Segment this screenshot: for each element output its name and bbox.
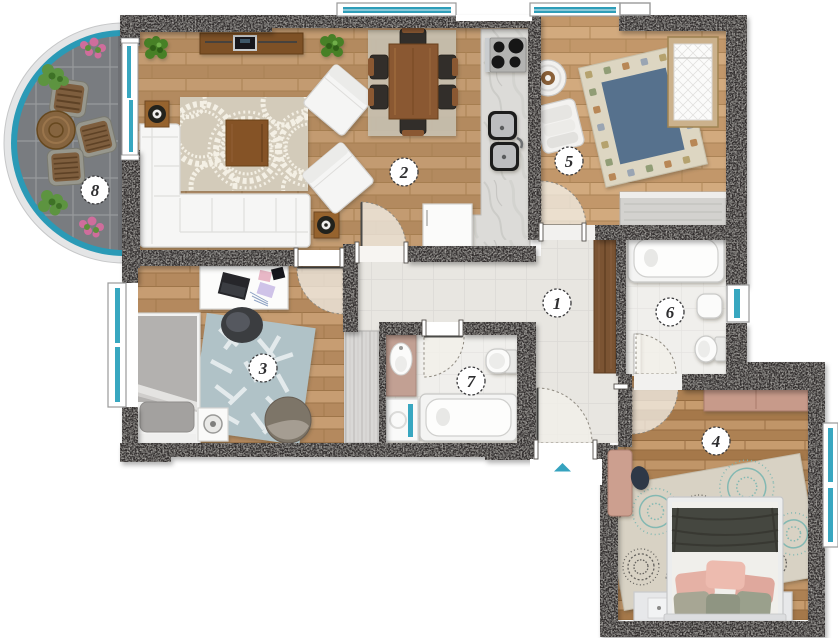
svg-text:6: 6: [666, 303, 675, 322]
svg-text:4: 4: [711, 432, 721, 451]
svg-text:5: 5: [565, 152, 574, 171]
svg-text:8: 8: [91, 181, 100, 200]
svg-text:2: 2: [399, 163, 409, 182]
svg-text:3: 3: [258, 359, 268, 378]
svg-text:1: 1: [553, 294, 562, 313]
